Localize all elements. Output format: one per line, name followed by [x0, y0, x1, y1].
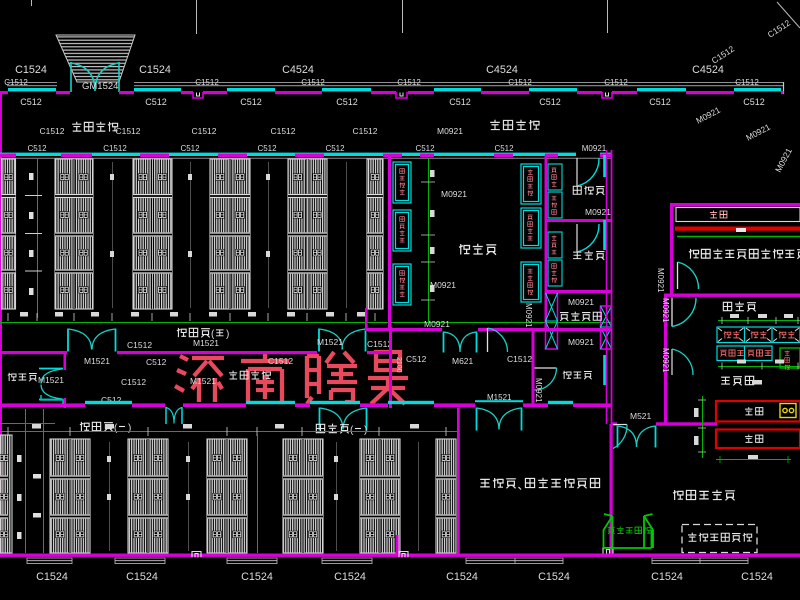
- svg-text:M0921: M0921: [656, 268, 665, 293]
- svg-text:M0921: M0921: [661, 348, 670, 373]
- svg-text:C1512: C1512: [103, 144, 127, 153]
- svg-text:M0921: M0921: [568, 337, 594, 347]
- svg-text:M1521: M1521: [193, 338, 219, 348]
- svg-text:C512: C512: [743, 97, 765, 107]
- svg-text:C512: C512: [145, 97, 167, 107]
- svg-text:C4524: C4524: [692, 64, 724, 76]
- svg-text:C1512: C1512: [507, 354, 532, 364]
- svg-text:C4524: C4524: [486, 64, 518, 76]
- svg-text:M0921: M0921: [524, 303, 533, 328]
- svg-text:M0921: M0921: [568, 297, 594, 307]
- svg-text:C1512: C1512: [367, 339, 392, 349]
- svg-text:M0921: M0921: [585, 207, 611, 217]
- svg-text:C1512: C1512: [191, 126, 216, 136]
- svg-text:C4524: C4524: [282, 64, 314, 76]
- svg-text:): ): [128, 423, 131, 434]
- svg-text:C1512: C1512: [397, 78, 421, 87]
- svg-text:C512: C512: [649, 97, 671, 107]
- svg-text:C1524: C1524: [126, 571, 158, 583]
- svg-text:C1512: C1512: [115, 126, 140, 136]
- svg-text:M0921: M0921: [534, 378, 543, 403]
- svg-text:C1524: C1524: [741, 571, 773, 583]
- svg-text:C512: C512: [539, 97, 561, 107]
- svg-text:C1524: C1524: [15, 64, 47, 76]
- svg-text:C1524: C1524: [139, 64, 171, 76]
- svg-text:C512: C512: [494, 144, 514, 153]
- svg-text:M621: M621: [452, 356, 474, 366]
- svg-text:M1521: M1521: [487, 393, 512, 402]
- svg-text:C1524: C1524: [36, 571, 68, 583]
- svg-text:C512: C512: [146, 357, 167, 367]
- svg-text:C512: C512: [240, 97, 262, 107]
- svg-text:2100: 2100: [395, 357, 402, 373]
- svg-text:C1512: C1512: [268, 356, 293, 366]
- svg-text:C512: C512: [27, 144, 47, 153]
- svg-text:C1512: C1512: [352, 126, 377, 136]
- svg-text:): ): [226, 329, 229, 340]
- svg-text:M1521: M1521: [317, 337, 343, 347]
- svg-text:M521: M521: [630, 411, 652, 421]
- svg-text:M1521: M1521: [84, 356, 110, 366]
- svg-text:C1512: C1512: [127, 340, 152, 350]
- svg-text:C512: C512: [415, 144, 435, 153]
- svg-text:C1512: C1512: [39, 126, 64, 136]
- svg-text:C1524: C1524: [241, 571, 273, 583]
- svg-text:M0921: M0921: [424, 319, 450, 329]
- svg-text:C1524: C1524: [334, 571, 366, 583]
- svg-text:M1521: M1521: [190, 376, 216, 386]
- svg-text:C1512: C1512: [508, 78, 532, 87]
- svg-text:M0921: M0921: [582, 144, 607, 153]
- svg-text:M0921: M0921: [441, 189, 467, 199]
- svg-text:C1512: C1512: [270, 126, 295, 136]
- svg-text:C512: C512: [20, 97, 42, 107]
- svg-text:C1524: C1524: [446, 571, 478, 583]
- svg-text:M0921: M0921: [430, 280, 456, 290]
- svg-text:M0921: M0921: [661, 298, 670, 323]
- svg-text:M0921: M0921: [437, 126, 463, 136]
- svg-text:C512: C512: [325, 144, 345, 153]
- svg-text:C1512: C1512: [121, 377, 146, 387]
- svg-text:C1524: C1524: [651, 571, 683, 583]
- svg-text:C1512: C1512: [301, 78, 325, 87]
- svg-text:C512: C512: [449, 97, 471, 107]
- svg-text:C1524: C1524: [538, 571, 570, 583]
- svg-text:C512: C512: [336, 97, 358, 107]
- svg-text:C1512: C1512: [735, 78, 759, 87]
- svg-text:C1512: C1512: [4, 78, 28, 87]
- svg-text:GM1524: GM1524: [82, 81, 118, 92]
- svg-text:C512: C512: [406, 354, 427, 364]
- svg-text:C512: C512: [180, 144, 200, 153]
- svg-text:C1512: C1512: [604, 78, 628, 87]
- svg-text:): ): [364, 425, 367, 436]
- svg-text:C1512: C1512: [195, 78, 219, 87]
- svg-text:C512: C512: [257, 144, 277, 153]
